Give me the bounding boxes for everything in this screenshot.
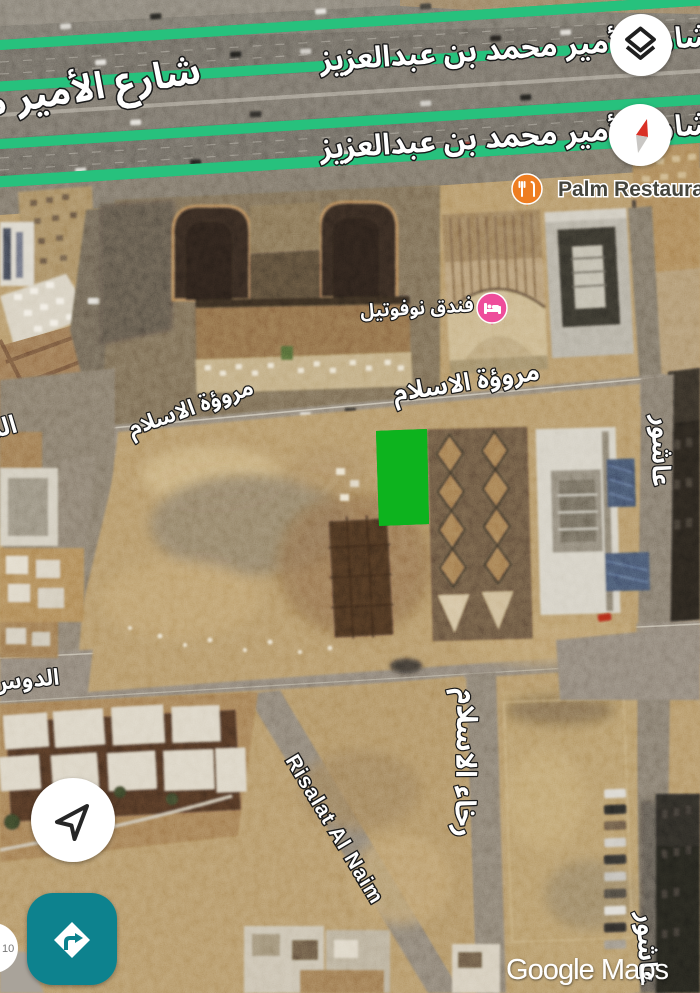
- svg-text:Google Maps: Google Maps: [506, 954, 669, 986]
- svg-text:10: 10: [2, 943, 14, 955]
- svg-text:Palm Restaura: Palm Restaura: [558, 178, 700, 201]
